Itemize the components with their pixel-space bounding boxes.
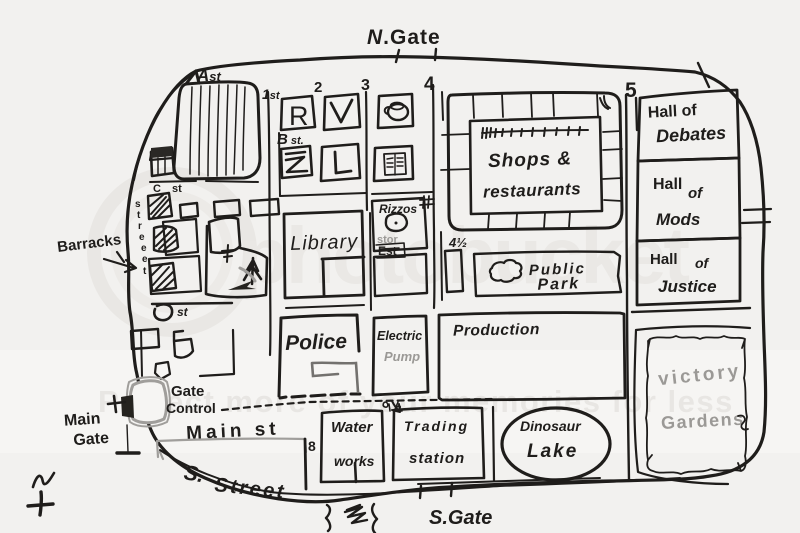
svg-text:e: e	[139, 232, 145, 243]
svg-text:Ast: Ast	[196, 66, 222, 85]
svg-text:of: of	[688, 185, 704, 202]
svg-text:works: works	[334, 453, 375, 469]
svg-text:photobucket: photobucket	[240, 211, 689, 300]
svg-text:Shops &: Shops &	[488, 148, 573, 172]
svg-text:Dinosaur: Dinosaur	[520, 418, 582, 434]
svg-text:Gate: Gate	[73, 430, 110, 449]
svg-text:2: 2	[314, 79, 322, 96]
svg-text:st: st	[172, 183, 182, 195]
svg-text:r: r	[138, 221, 142, 232]
svg-text:Trading: Trading	[404, 418, 469, 434]
svg-text:Pump: Pump	[384, 349, 420, 364]
svg-text:Production: Production	[453, 321, 540, 340]
svg-text:of: of	[695, 255, 710, 271]
svg-text:e: e	[142, 254, 148, 265]
svg-text:station: station	[409, 450, 465, 467]
svg-text:S.: S.	[182, 461, 206, 487]
svg-text:N.Gate: N.Gate	[367, 26, 441, 49]
svg-text:Park: Park	[537, 275, 580, 293]
svg-text:Debates: Debates	[656, 123, 727, 147]
svg-text:4½: 4½	[448, 235, 467, 250]
svg-text:Mods: Mods	[656, 210, 700, 229]
svg-text:R: R	[289, 101, 309, 131]
svg-text:Library: Library	[290, 231, 359, 255]
svg-text:Hall: Hall	[650, 251, 678, 268]
svg-text:Hall: Hall	[653, 176, 682, 193]
svg-text:Lake: Lake	[527, 441, 578, 462]
svg-text:e: e	[141, 243, 147, 254]
svg-text:Control: Control	[166, 400, 216, 416]
svg-text:restaurants: restaurants	[483, 179, 582, 201]
svg-text:Hall of: Hall of	[647, 102, 697, 122]
svg-text:st: st	[177, 305, 189, 319]
svg-text:S.Gate: S.Gate	[429, 507, 492, 529]
svg-text:Main: Main	[63, 410, 101, 430]
svg-text:Justice: Justice	[658, 277, 717, 296]
svg-text:Water: Water	[331, 419, 374, 436]
svg-text:8: 8	[308, 438, 316, 454]
svg-text:Gate: Gate	[171, 383, 204, 400]
svg-text:Electric: Electric	[377, 329, 422, 343]
svg-text:Police: Police	[285, 330, 348, 355]
svg-text:s: s	[135, 199, 141, 210]
